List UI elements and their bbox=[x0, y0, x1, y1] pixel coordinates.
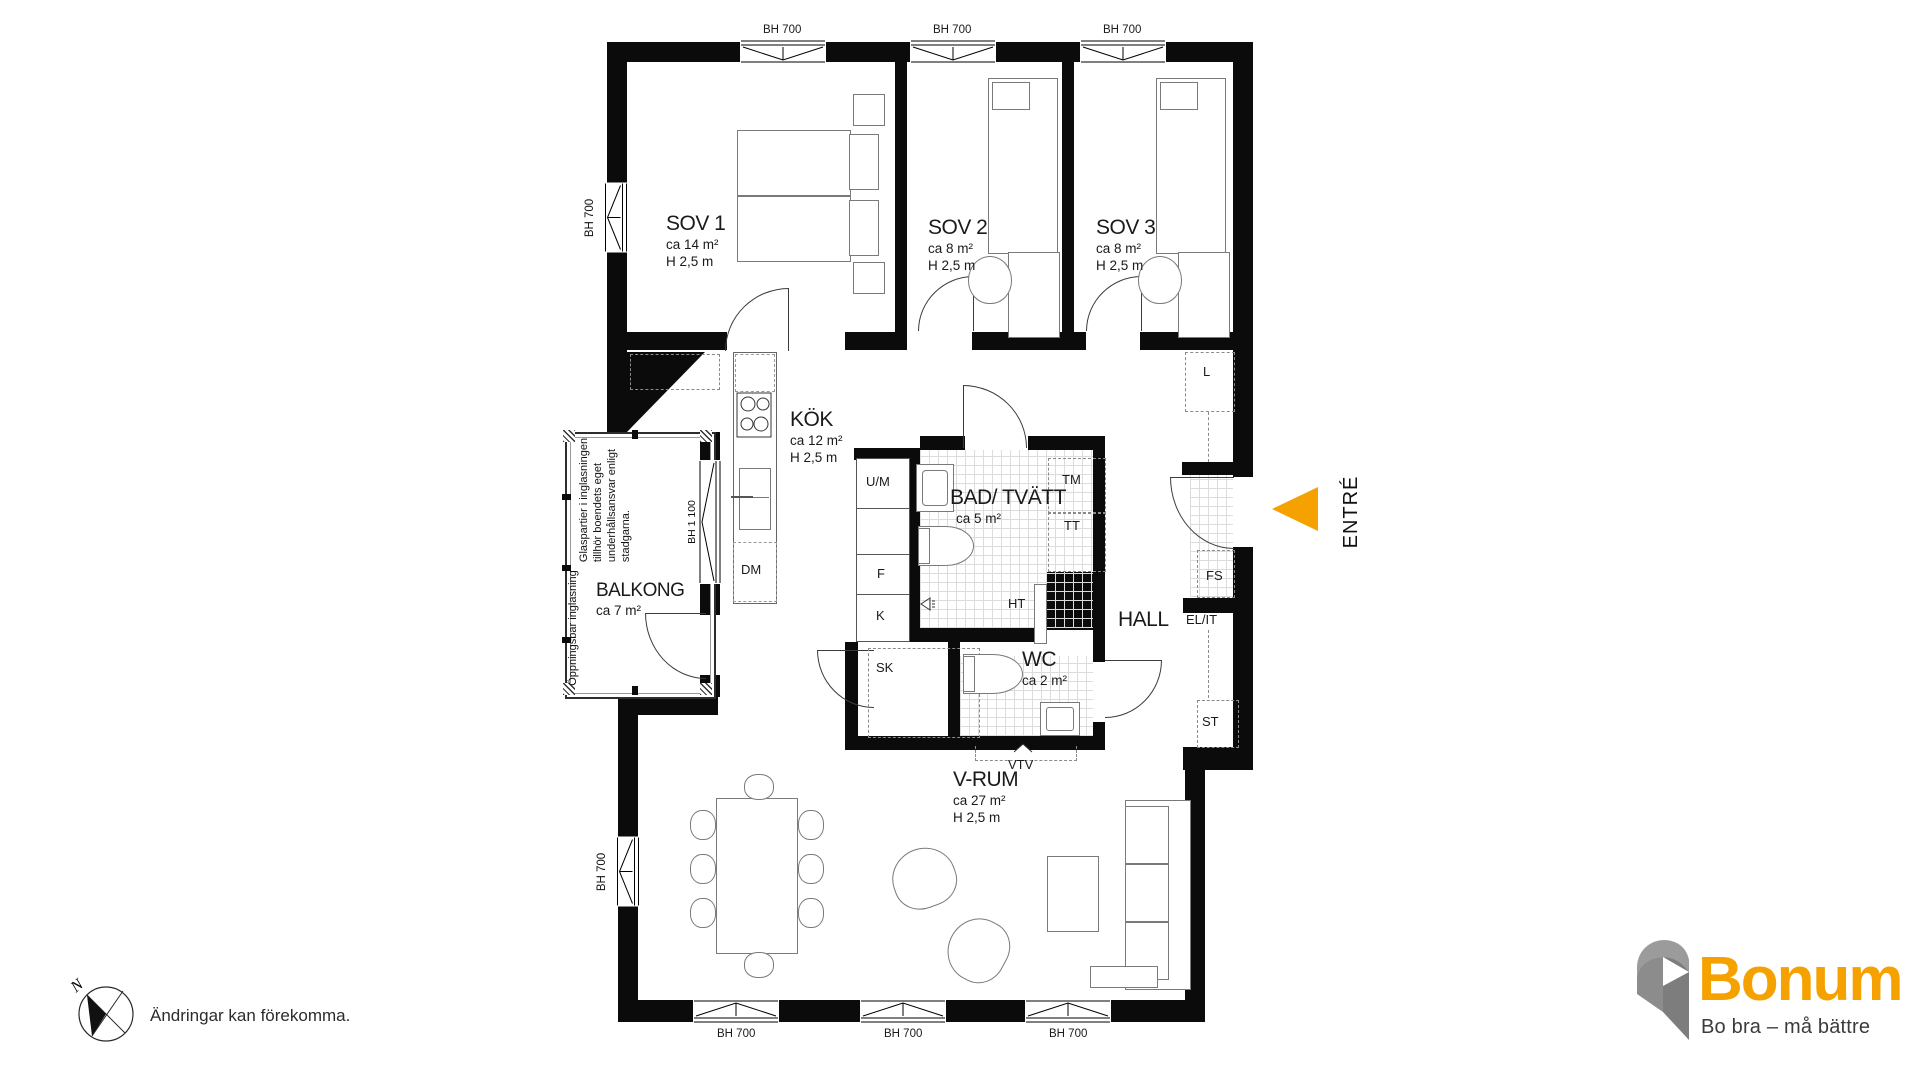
dining-chair bbox=[744, 774, 774, 800]
compass-n-label: N bbox=[70, 975, 88, 996]
room-height: H 2,5 m bbox=[928, 257, 987, 274]
room-label-wc: WC ca 2 m² bbox=[1022, 648, 1067, 689]
fixture-label-dm: DM bbox=[741, 562, 761, 577]
door-arc-sov2 bbox=[918, 276, 974, 331]
bath-toilet-tank bbox=[918, 528, 930, 564]
sov1-wardrobe bbox=[630, 354, 720, 390]
room-area: ca 14 m² bbox=[666, 236, 725, 253]
stove-icon bbox=[736, 392, 772, 438]
wc-toilet-tank bbox=[963, 656, 975, 692]
fixture-label-elit: EL/IT bbox=[1186, 612, 1217, 627]
room-area: ca 12 m² bbox=[790, 432, 843, 449]
fixture-label-sk: SK bbox=[876, 660, 893, 675]
wall bbox=[1182, 462, 1233, 475]
room-label-bad: BAD/ TVÄTT ca 5 m² bbox=[950, 486, 1066, 527]
fixture-label-tm: TM bbox=[1062, 472, 1081, 487]
wall bbox=[920, 628, 1038, 642]
window bbox=[1025, 999, 1111, 1024]
room-label-vrum: V-RUM ca 27 m² H 2,5 m bbox=[953, 768, 1018, 826]
wall bbox=[845, 332, 907, 350]
vtv-caret-icon bbox=[1012, 742, 1034, 754]
desk bbox=[1008, 252, 1060, 338]
wall bbox=[1183, 747, 1253, 770]
window-label-bh700: BH 700 bbox=[717, 1028, 755, 1040]
room-label-sov1: SOV 1 ca 14 m² H 2,5 m bbox=[666, 212, 725, 270]
window-label-bh700: BH 700 bbox=[1049, 1028, 1087, 1040]
bed-mattress bbox=[737, 130, 851, 196]
kitchen-faucet bbox=[731, 496, 753, 498]
balcony-corner-hatch bbox=[563, 430, 575, 442]
room-label-balkong: BALKONG ca 7 m² bbox=[596, 580, 684, 619]
room-height: H 2,5 m bbox=[1096, 257, 1155, 274]
dining-chair bbox=[690, 810, 716, 840]
room-area: ca 27 m² bbox=[953, 792, 1018, 809]
armchair bbox=[884, 839, 965, 917]
dining-table bbox=[716, 798, 798, 954]
fixture-label-l: L bbox=[1203, 364, 1210, 379]
wall bbox=[895, 62, 907, 332]
room-name: SOV 2 bbox=[928, 216, 987, 240]
fixture-label-vtv: VTV bbox=[1008, 757, 1033, 772]
door-arc-wc bbox=[1105, 660, 1162, 718]
wall bbox=[607, 332, 727, 350]
brand-name: Bonum bbox=[1698, 944, 1902, 1015]
bed-mattress bbox=[737, 196, 851, 262]
wall bbox=[1062, 62, 1074, 332]
towel-rail-ht bbox=[1034, 584, 1047, 644]
door-arc-sov1 bbox=[725, 288, 789, 351]
entrance-arrow-icon bbox=[1272, 487, 1318, 531]
window bbox=[698, 460, 722, 584]
wall bbox=[1093, 642, 1105, 662]
room-name: SOV 1 bbox=[666, 212, 725, 236]
window-label-bh700: BH 700 bbox=[763, 24, 801, 36]
note-line: tillhör boendets eget bbox=[591, 438, 605, 562]
room-area: ca 5 m² bbox=[956, 510, 1066, 527]
room-name: KÖK bbox=[790, 408, 843, 432]
door-arc-sov3 bbox=[1086, 276, 1142, 331]
coffee-table bbox=[1047, 856, 1099, 932]
sofa-cushion bbox=[1125, 806, 1169, 864]
room-name: WC bbox=[1022, 648, 1067, 672]
closet-depth-line bbox=[1208, 412, 1209, 462]
tv-bench bbox=[1090, 966, 1158, 988]
window-label-bh700: BH 700 bbox=[584, 199, 596, 237]
window-label-bh700: BH 700 bbox=[933, 24, 971, 36]
balcony-openable-note: Öppningsbar inglasning bbox=[567, 570, 579, 686]
window bbox=[860, 999, 946, 1024]
dining-chair bbox=[690, 898, 716, 928]
room-area: ca 8 m² bbox=[928, 240, 987, 257]
room-name: SOV 3 bbox=[1096, 216, 1155, 240]
window bbox=[1080, 39, 1166, 64]
wall bbox=[1183, 598, 1233, 613]
note-line: underhållsansvar enligt bbox=[605, 438, 619, 562]
room-name: BAD/ TVÄTT bbox=[950, 486, 1066, 510]
fixture-label-fs: FS bbox=[1206, 568, 1223, 583]
room-area: ca 2 m² bbox=[1022, 672, 1067, 689]
wall bbox=[607, 352, 627, 435]
room-label-hall: HALL bbox=[1118, 608, 1169, 632]
brand-tagline: Bo bra – må bättre bbox=[1701, 1016, 1870, 1039]
window-label-bh1100: BH 1 100 bbox=[686, 500, 698, 544]
room-label-sov3: SOV 3 ca 8 m² H 2,5 m bbox=[1096, 216, 1155, 274]
window bbox=[740, 39, 826, 64]
sofa-cushion bbox=[1125, 864, 1169, 922]
dining-chair bbox=[798, 854, 824, 884]
disclaimer-text: Ändringar kan förekomma. bbox=[150, 1006, 350, 1026]
kitchen-hood bbox=[735, 354, 775, 392]
fixture-label-f: F bbox=[877, 566, 885, 581]
bed-pillow bbox=[1160, 82, 1198, 110]
balcony-corner-hatch bbox=[700, 430, 712, 442]
window-label-bh700: BH 700 bbox=[884, 1028, 922, 1040]
note-line: stadgarna. bbox=[619, 438, 633, 562]
door-arc-bath bbox=[963, 385, 1027, 448]
wc-sink-basin bbox=[1046, 707, 1074, 731]
glazing-tick bbox=[632, 686, 638, 695]
note-line: Glaspartier i inglasningen bbox=[577, 438, 591, 562]
door-arc-sk bbox=[817, 650, 874, 708]
compass-north-icon: N bbox=[70, 972, 140, 1048]
door-arc-entry bbox=[1170, 477, 1234, 549]
dining-chair bbox=[744, 952, 774, 978]
room-label-sov2: SOV 2 ca 8 m² H 2,5 m bbox=[928, 216, 987, 274]
desk bbox=[1178, 252, 1230, 338]
linen-closet-l bbox=[1185, 352, 1235, 412]
kitchen-sink bbox=[739, 468, 771, 530]
window bbox=[910, 39, 996, 64]
closet-cell bbox=[856, 508, 910, 556]
bed-pillow bbox=[849, 200, 879, 256]
dining-chair bbox=[690, 854, 716, 884]
balcony-glass-note: Glaspartier i inglasningen tillhör boend… bbox=[577, 438, 633, 562]
fixture-label-st: ST bbox=[1202, 714, 1219, 729]
bath-sink-basin bbox=[922, 470, 948, 506]
bed-pillow bbox=[992, 82, 1030, 110]
glazing-tick bbox=[562, 494, 571, 500]
bonum-logo-icon bbox=[1633, 936, 1693, 1042]
fixture-label-tt: TT bbox=[1064, 518, 1080, 533]
fixture-label-um: U/M bbox=[866, 474, 890, 489]
fixture-label-k: K bbox=[876, 608, 885, 623]
room-area: ca 7 m² bbox=[596, 602, 684, 619]
window-label-bh700: BH 700 bbox=[596, 853, 608, 891]
fixture-label-ht: HT bbox=[1008, 596, 1025, 611]
nightstand bbox=[853, 94, 885, 126]
wall bbox=[1093, 722, 1105, 748]
entrance-label: ENTRÉ bbox=[1340, 476, 1363, 549]
elit-depth-line bbox=[1208, 630, 1209, 698]
window bbox=[693, 999, 779, 1024]
window-label-bh700: BH 700 bbox=[1103, 24, 1141, 36]
floorplan-page: SOV 1 ca 14 m² H 2,5 m SOV 2 ca 8 m² H 2… bbox=[0, 0, 1920, 1080]
shower-icon bbox=[918, 596, 936, 612]
room-label-kok: KÖK ca 12 m² H 2,5 m bbox=[790, 408, 843, 466]
dining-chair bbox=[798, 898, 824, 928]
wall bbox=[1233, 62, 1253, 477]
room-name: BALKONG bbox=[596, 580, 684, 602]
room-height: H 2,5 m bbox=[953, 809, 1018, 826]
balcony-corner-hatch bbox=[700, 683, 712, 695]
window bbox=[604, 183, 629, 253]
armchair bbox=[936, 908, 1019, 993]
bed-pillow bbox=[849, 134, 879, 190]
nightstand bbox=[853, 262, 885, 294]
wall bbox=[920, 436, 965, 450]
room-height: H 2,5 m bbox=[790, 449, 843, 466]
room-area: ca 8 m² bbox=[1096, 240, 1155, 257]
window bbox=[616, 837, 641, 907]
dining-chair bbox=[798, 810, 824, 840]
room-height: H 2,5 m bbox=[666, 253, 725, 270]
